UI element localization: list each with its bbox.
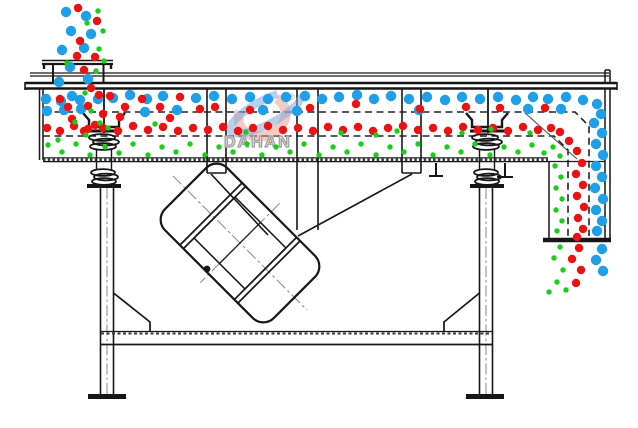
motor-mount-bracket xyxy=(207,158,421,236)
diagram-canvas: DAHAN ® xyxy=(0,0,638,428)
cross-beam xyxy=(101,332,492,345)
discharge-chute xyxy=(543,162,611,241)
spring-mount-right xyxy=(466,113,508,186)
support-leg-left xyxy=(88,188,126,397)
support-leg-right xyxy=(466,188,504,397)
diagonal-brace-left xyxy=(114,293,151,332)
machine-linework xyxy=(0,0,638,428)
diagonal-brace-right xyxy=(444,293,480,332)
motor-bolt xyxy=(204,266,211,273)
vibration-motor xyxy=(133,136,347,350)
screen-decks xyxy=(43,112,589,236)
feed-inlet xyxy=(42,61,113,84)
